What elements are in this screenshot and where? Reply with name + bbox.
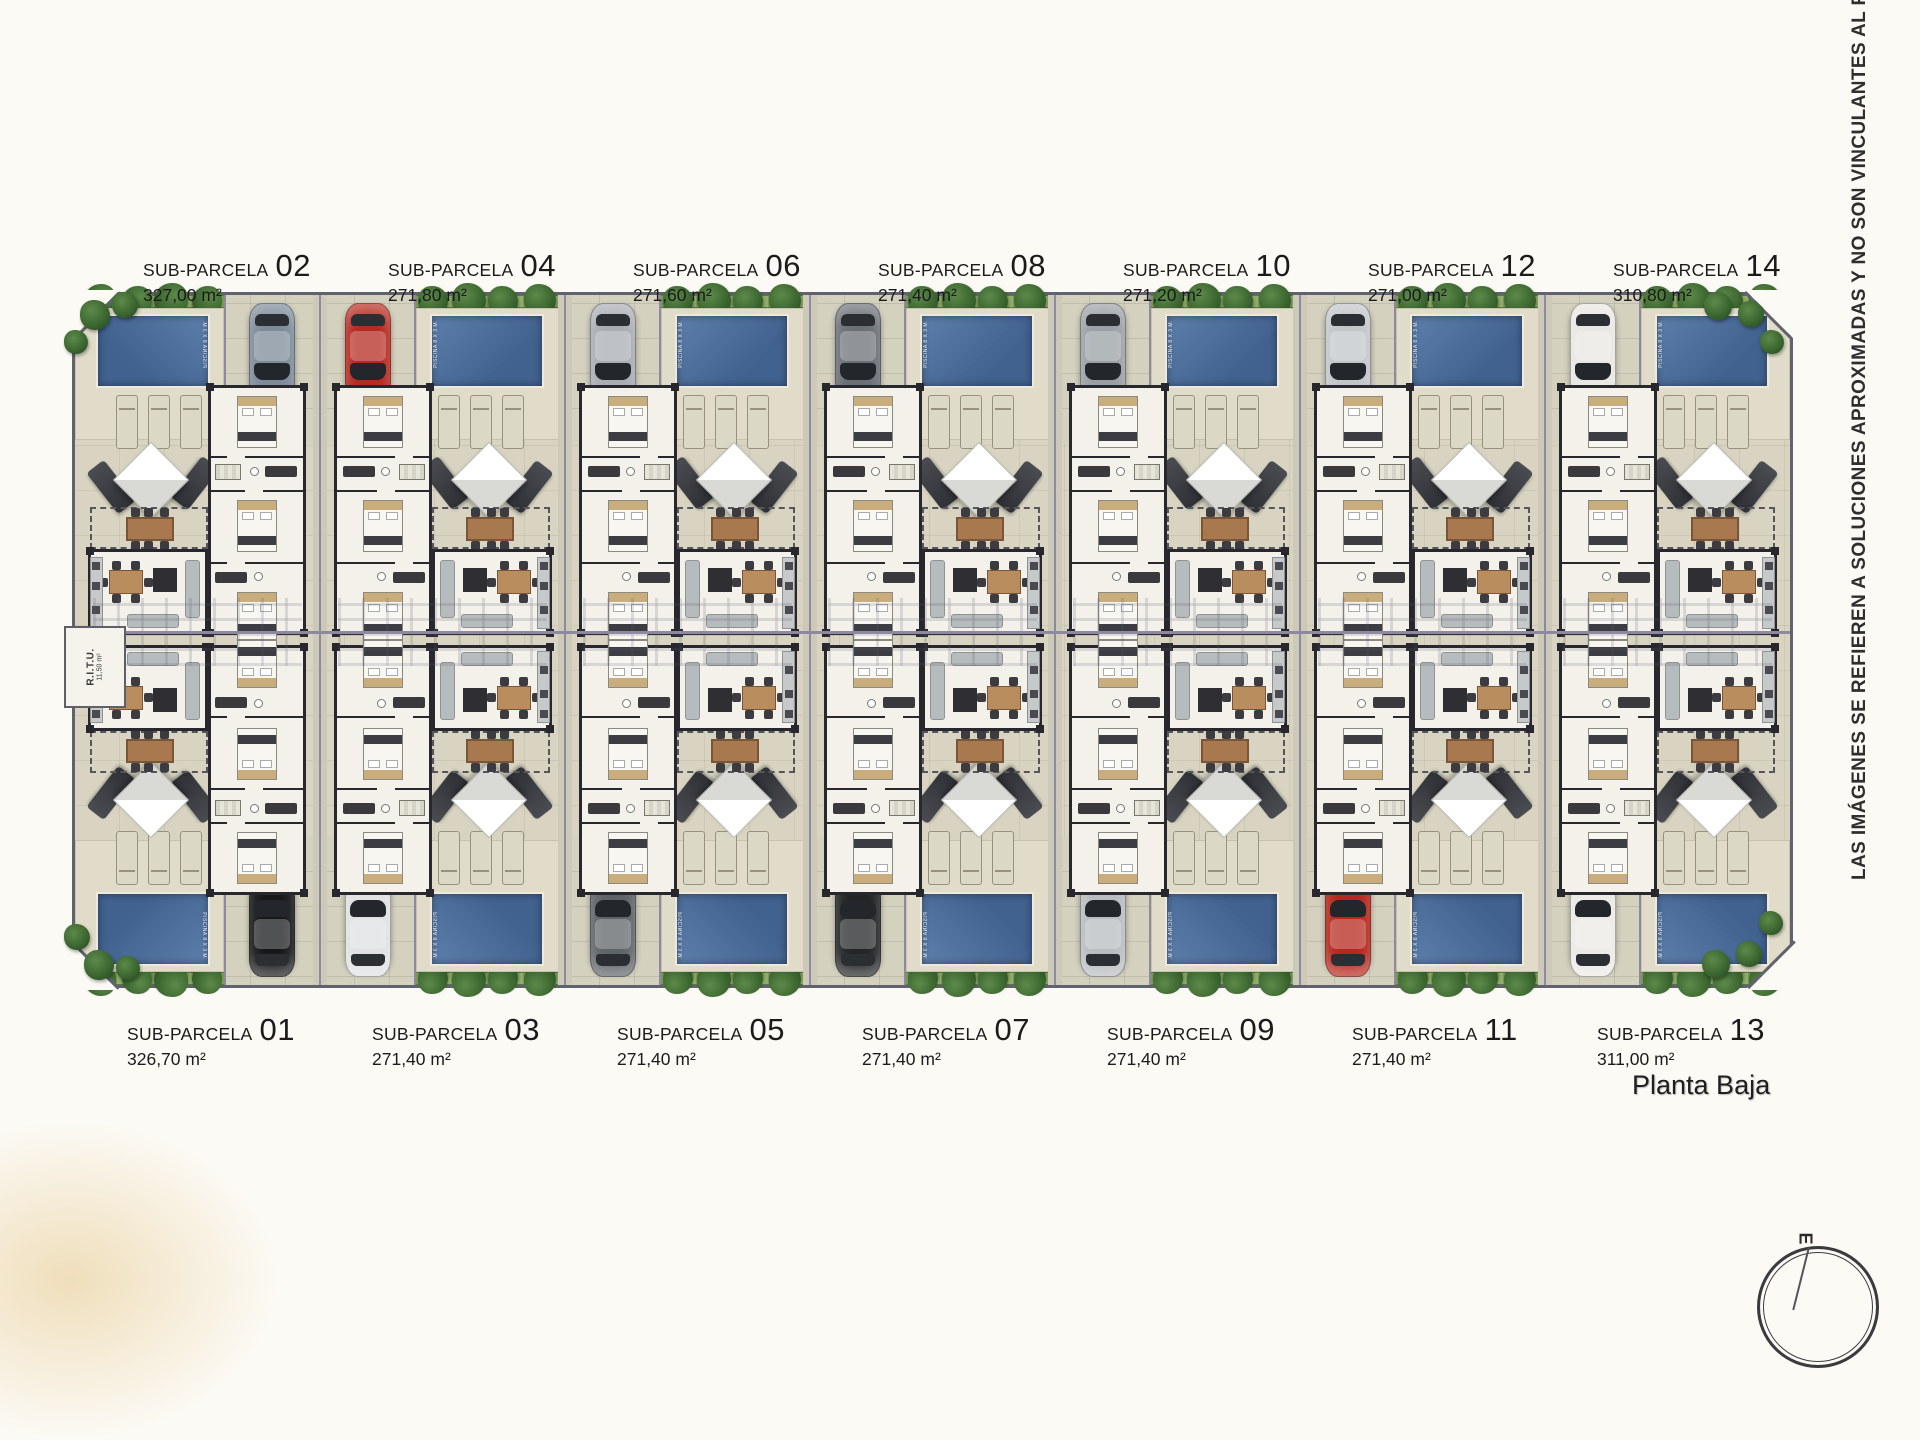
outdoor-table bbox=[1446, 517, 1494, 541]
tree-icon bbox=[1760, 330, 1784, 354]
pool-label: PISCINA 8 X 3 M. bbox=[1413, 320, 1419, 368]
outdoor-table bbox=[1446, 739, 1494, 763]
bed bbox=[1343, 396, 1383, 448]
tree-icon bbox=[1702, 950, 1730, 978]
wardrobe bbox=[215, 464, 241, 480]
car-windshield bbox=[1330, 363, 1366, 380]
swimming-pool: PISCINA 8 X 3 M. bbox=[430, 892, 544, 966]
parcel-label-11: SUB-PARCELA11 271,40 m² bbox=[1352, 1012, 1518, 1070]
utility-room-area: 11,50 m² bbox=[97, 648, 104, 685]
car-roof bbox=[254, 331, 290, 361]
sink-icon bbox=[867, 699, 876, 708]
parcel-area: 271,40 m² bbox=[617, 1049, 785, 1070]
sink-icon bbox=[1116, 467, 1125, 476]
tree-icon bbox=[1736, 941, 1762, 967]
bed bbox=[1343, 832, 1383, 884]
parcel-number: 08 bbox=[1011, 248, 1046, 283]
bed bbox=[853, 832, 893, 884]
sun-lounger bbox=[148, 395, 170, 449]
sink-icon bbox=[1116, 804, 1125, 813]
plan-title: Planta Baja bbox=[1632, 1070, 1770, 1101]
villa-bedroom-wing bbox=[1559, 645, 1657, 895]
pool-label: PISCINA 8 X 3 M. bbox=[201, 912, 207, 960]
bathroom-counter bbox=[215, 697, 247, 708]
parcel-14: PISCINA 8 X 3 M. bbox=[1545, 295, 1790, 640]
tv-unit bbox=[463, 568, 487, 592]
parcel-13: PISCINA 8 X 3 M. bbox=[1545, 640, 1790, 985]
bed bbox=[1588, 832, 1628, 884]
bed bbox=[363, 500, 403, 552]
car-rear-window bbox=[1576, 314, 1610, 326]
parcel-label-prefix: SUB-PARCELA bbox=[862, 1024, 988, 1044]
bathroom-counter bbox=[215, 572, 247, 583]
path-divider bbox=[1538, 295, 1552, 985]
parcel-number: 01 bbox=[260, 1012, 295, 1047]
bathroom-counter bbox=[1323, 803, 1355, 814]
bathroom-counter bbox=[1323, 466, 1355, 477]
bed bbox=[1588, 728, 1628, 780]
pool-label: PISCINA 8 X 3 M. bbox=[1658, 912, 1664, 960]
sun-lounger bbox=[928, 831, 950, 885]
bed bbox=[853, 728, 893, 780]
bed bbox=[608, 832, 648, 884]
tree-icon bbox=[116, 956, 140, 980]
villa-bedroom-wing bbox=[824, 645, 922, 895]
bathroom-counter bbox=[1128, 572, 1160, 583]
bed bbox=[608, 396, 648, 448]
parcel-number: 06 bbox=[766, 248, 801, 283]
sofa bbox=[1175, 662, 1190, 720]
sun-lounger bbox=[1727, 831, 1749, 885]
sun-lounger bbox=[180, 831, 202, 885]
parcel-area: 271,40 m² bbox=[1107, 1049, 1275, 1070]
path-divider bbox=[558, 295, 572, 985]
sink-icon bbox=[1357, 572, 1366, 581]
tv-unit bbox=[1198, 688, 1222, 712]
tv-unit bbox=[708, 688, 732, 712]
bathroom-counter bbox=[265, 466, 297, 477]
sun-lounger bbox=[992, 395, 1014, 449]
sink-icon bbox=[1602, 699, 1611, 708]
sun-lounger bbox=[1695, 831, 1717, 885]
villa-bedroom-wing bbox=[579, 645, 677, 895]
bathroom-counter bbox=[393, 697, 425, 708]
bed bbox=[608, 728, 648, 780]
sun-lounger bbox=[928, 395, 950, 449]
bed bbox=[363, 832, 403, 884]
sun-lounger bbox=[1205, 831, 1227, 885]
parcel-number: 07 bbox=[995, 1012, 1030, 1047]
car-rear-window bbox=[1576, 954, 1610, 966]
car-windshield bbox=[840, 900, 876, 917]
pool-label: PISCINA 8 X 3 M. bbox=[1168, 912, 1174, 960]
sink-icon bbox=[250, 804, 259, 813]
parcel-label-prefix: SUB-PARCELA bbox=[617, 1024, 743, 1044]
swimming-pool: PISCINA 8 X 3 M. bbox=[920, 314, 1034, 388]
outdoor-table bbox=[1691, 739, 1739, 763]
dining-table bbox=[987, 570, 1021, 594]
parcel-area: 271,40 m² bbox=[878, 285, 1046, 306]
car-roof bbox=[1085, 331, 1121, 361]
bathroom-counter bbox=[883, 572, 915, 583]
bed bbox=[1098, 728, 1138, 780]
parcel-label-prefix: SUB-PARCELA bbox=[1352, 1024, 1478, 1044]
bathroom-counter bbox=[1373, 572, 1405, 583]
page-corner-glow bbox=[0, 1120, 280, 1440]
outdoor-table bbox=[1691, 517, 1739, 541]
parcel-label-14: SUB-PARCELA14 310,80 m² bbox=[1613, 248, 1781, 306]
car-roof bbox=[595, 919, 631, 949]
parcel-label-08: SUB-PARCELA08 271,40 m² bbox=[878, 248, 1046, 306]
sun-lounger bbox=[1450, 831, 1472, 885]
sun-lounger bbox=[1237, 831, 1259, 885]
sink-icon bbox=[377, 572, 386, 581]
parcel-number: 11 bbox=[1485, 1012, 1518, 1047]
bathroom-counter bbox=[833, 466, 865, 477]
utility-room-label: R.I.T.U. bbox=[86, 648, 97, 685]
villa-bedroom-wing bbox=[334, 645, 432, 895]
tree-icon bbox=[64, 924, 90, 950]
sink-icon bbox=[1361, 804, 1370, 813]
sofa bbox=[930, 662, 945, 720]
page: { "page": { "disclaimer": "LAS IMÁGENES … bbox=[0, 0, 1920, 1280]
parcel-area: 271,00 m² bbox=[1368, 285, 1536, 306]
car-rear-window bbox=[351, 954, 385, 966]
bathroom-counter bbox=[265, 803, 297, 814]
bathroom-counter bbox=[1078, 803, 1110, 814]
sun-lounger bbox=[1482, 395, 1504, 449]
bed bbox=[1343, 728, 1383, 780]
wardrobe bbox=[644, 800, 670, 816]
parcel-label-prefix: SUB-PARCELA bbox=[388, 260, 514, 280]
sink-icon bbox=[871, 804, 880, 813]
dining-table bbox=[1722, 570, 1756, 594]
parcel-03: PISCINA 8 X 3 M. bbox=[320, 640, 565, 985]
sofa bbox=[1665, 662, 1680, 720]
car-windshield bbox=[840, 363, 876, 380]
swimming-pool: PISCINA 8 X 3 M. bbox=[1165, 892, 1279, 966]
bathroom-counter bbox=[638, 697, 670, 708]
car-windshield bbox=[1330, 900, 1366, 917]
outdoor-table bbox=[956, 517, 1004, 541]
sun-lounger bbox=[438, 395, 460, 449]
bathroom-counter bbox=[588, 803, 620, 814]
parcel-label-07: SUB-PARCELA07 271,40 m² bbox=[862, 1012, 1030, 1070]
sink-icon bbox=[1361, 467, 1370, 476]
wardrobe bbox=[1134, 800, 1160, 816]
bed bbox=[1098, 396, 1138, 448]
bathroom-counter bbox=[393, 572, 425, 583]
parcel-label-03: SUB-PARCELA03 271,40 m² bbox=[372, 1012, 540, 1070]
tv-unit bbox=[1688, 688, 1712, 712]
parcel-02: PISCINA 8 X 3 M. bbox=[75, 295, 320, 640]
villa-bedroom-wing bbox=[1069, 645, 1167, 895]
bathroom-counter bbox=[1128, 697, 1160, 708]
parcel-number: 03 bbox=[505, 1012, 540, 1047]
bathroom-counter bbox=[1568, 803, 1600, 814]
bed bbox=[1098, 500, 1138, 552]
bathroom-counter bbox=[638, 572, 670, 583]
parcel-area: 271,40 m² bbox=[1352, 1049, 1518, 1070]
dining-table bbox=[742, 686, 776, 710]
parcel-label-prefix: SUB-PARCELA bbox=[878, 260, 1004, 280]
bed bbox=[237, 832, 277, 884]
parcel-label-prefix: SUB-PARCELA bbox=[372, 1024, 498, 1044]
sun-lounger bbox=[960, 831, 982, 885]
sun-lounger bbox=[1727, 395, 1749, 449]
bathroom-counter bbox=[1373, 697, 1405, 708]
wardrobe bbox=[889, 464, 915, 480]
swimming-pool: PISCINA 8 X 3 M. bbox=[920, 892, 1034, 966]
outdoor-table bbox=[466, 517, 514, 541]
car-windshield bbox=[254, 363, 290, 380]
car-roof bbox=[350, 919, 386, 949]
bed bbox=[1098, 832, 1138, 884]
parcel-04: PISCINA 8 X 3 M. bbox=[320, 295, 565, 640]
car-rear-window bbox=[1331, 954, 1365, 966]
parcel-label-04: SUB-PARCELA04 271,80 m² bbox=[388, 248, 556, 306]
car-windshield bbox=[595, 900, 631, 917]
bed bbox=[853, 396, 893, 448]
sun-lounger bbox=[148, 831, 170, 885]
sink-icon bbox=[381, 804, 390, 813]
tree-icon bbox=[1759, 911, 1783, 935]
parcel-label-prefix: SUB-PARCELA bbox=[1107, 1024, 1233, 1044]
parcel-label-prefix: SUB-PARCELA bbox=[633, 260, 759, 280]
sun-lounger bbox=[1418, 831, 1440, 885]
parcel-label-06: SUB-PARCELA06 271,60 m² bbox=[633, 248, 801, 306]
car-roof bbox=[595, 331, 631, 361]
sofa bbox=[685, 662, 700, 720]
swimming-pool: PISCINA 8 X 3 M. bbox=[675, 314, 789, 388]
parcel-area: 271,40 m² bbox=[372, 1049, 540, 1070]
car-roof bbox=[350, 331, 386, 361]
sink-icon bbox=[381, 467, 390, 476]
tv-unit bbox=[463, 688, 487, 712]
parcel-label-02: SUB-PARCELA02 327,00 m² bbox=[143, 248, 311, 306]
parcel-08: PISCINA 8 X 3 M. bbox=[810, 295, 1055, 640]
sink-icon bbox=[1606, 804, 1615, 813]
sink-icon bbox=[622, 572, 631, 581]
parcel-label-prefix: SUB-PARCELA bbox=[1123, 260, 1249, 280]
bathroom-counter bbox=[1568, 466, 1600, 477]
car-windshield bbox=[350, 363, 386, 380]
wardrobe bbox=[1379, 800, 1405, 816]
pool-label: PISCINA 8 X 3 M. bbox=[1168, 320, 1174, 368]
parcel-label-05: SUB-PARCELA05 271,40 m² bbox=[617, 1012, 785, 1070]
sun-lounger bbox=[683, 395, 705, 449]
dining-table bbox=[497, 570, 531, 594]
outdoor-table bbox=[711, 739, 759, 763]
sun-lounger bbox=[1663, 395, 1685, 449]
parcel-label-10: SUB-PARCELA10 271,20 m² bbox=[1123, 248, 1291, 306]
wardrobe bbox=[889, 800, 915, 816]
parcel-label-prefix: SUB-PARCELA bbox=[1368, 260, 1494, 280]
wardrobe bbox=[644, 464, 670, 480]
tree-icon bbox=[80, 300, 110, 330]
sofa bbox=[185, 662, 200, 720]
parcel-number: 04 bbox=[521, 248, 556, 283]
parcel-label-01: SUB-PARCELA01 326,70 m² bbox=[127, 1012, 295, 1070]
parcel-number: 09 bbox=[1240, 1012, 1275, 1047]
path-divider bbox=[313, 295, 327, 985]
sun-lounger bbox=[116, 395, 138, 449]
swimming-pool: PISCINA 8 X 3 M. bbox=[1165, 314, 1279, 388]
outdoor-table bbox=[711, 517, 759, 541]
parcel-number: 13 bbox=[1730, 1012, 1765, 1047]
pool-label: PISCINA 8 X 3 M. bbox=[433, 320, 439, 368]
wardrobe bbox=[1624, 800, 1650, 816]
dining-table bbox=[1232, 686, 1266, 710]
sink-icon bbox=[254, 572, 263, 581]
bed bbox=[1588, 396, 1628, 448]
pool-label: PISCINA 8 X 3 M. bbox=[433, 912, 439, 960]
path-divider bbox=[1293, 295, 1307, 985]
parcel-07: PISCINA 8 X 3 M. bbox=[810, 640, 1055, 985]
parcel-number: 02 bbox=[276, 248, 311, 283]
sink-icon bbox=[1357, 699, 1366, 708]
car-roof bbox=[1575, 919, 1611, 949]
tv-unit bbox=[953, 688, 977, 712]
bed bbox=[237, 396, 277, 448]
dining-table bbox=[742, 570, 776, 594]
dining-table bbox=[1477, 686, 1511, 710]
sink-icon bbox=[867, 572, 876, 581]
parcel-label-prefix: SUB-PARCELA bbox=[143, 260, 269, 280]
outdoor-table bbox=[126, 517, 174, 541]
wardrobe bbox=[399, 800, 425, 816]
sun-lounger bbox=[502, 395, 524, 449]
sun-lounger bbox=[715, 831, 737, 885]
outdoor-table bbox=[956, 739, 1004, 763]
tv-unit bbox=[153, 568, 177, 592]
dining-table bbox=[497, 686, 531, 710]
central-path-line bbox=[75, 631, 1790, 634]
bed bbox=[1343, 500, 1383, 552]
bathroom-counter bbox=[883, 697, 915, 708]
car-roof bbox=[1085, 919, 1121, 949]
car-roof bbox=[1330, 919, 1366, 949]
parcel-area: 271,20 m² bbox=[1123, 285, 1291, 306]
bed bbox=[1588, 500, 1628, 552]
car-windshield bbox=[1575, 900, 1611, 917]
car-roof bbox=[254, 919, 290, 949]
parcel-area: 271,60 m² bbox=[633, 285, 801, 306]
car-windshield bbox=[350, 900, 386, 917]
tree-icon bbox=[112, 292, 138, 318]
villa-bedroom-wing bbox=[208, 645, 306, 895]
sun-lounger bbox=[1237, 395, 1259, 449]
compass-icon bbox=[1757, 1246, 1879, 1368]
bed bbox=[363, 728, 403, 780]
parcel-label-prefix: SUB-PARCELA bbox=[127, 1024, 253, 1044]
car-windshield bbox=[1575, 363, 1611, 380]
sink-icon bbox=[1112, 699, 1121, 708]
parcel-label-09: SUB-PARCELA09 271,40 m² bbox=[1107, 1012, 1275, 1070]
tree-icon bbox=[84, 950, 114, 980]
car-windshield bbox=[1085, 900, 1121, 917]
tv-unit bbox=[1688, 568, 1712, 592]
tree-icon bbox=[64, 330, 88, 354]
car-rear-window bbox=[596, 954, 630, 966]
swimming-pool: PISCINA 8 X 3 M. bbox=[675, 892, 789, 966]
sink-icon bbox=[871, 467, 880, 476]
sink-icon bbox=[250, 467, 259, 476]
swimming-pool: PISCINA 8 X 3 M. bbox=[430, 314, 544, 388]
dining-table bbox=[1722, 686, 1756, 710]
parcel-label-13: SUB-PARCELA13 311,00 m² bbox=[1597, 1012, 1765, 1070]
parcel-area: 327,00 m² bbox=[143, 285, 311, 306]
car-roof bbox=[1330, 331, 1366, 361]
bathroom-counter bbox=[343, 803, 375, 814]
wardrobe bbox=[1134, 464, 1160, 480]
sun-lounger bbox=[747, 831, 769, 885]
pool-label: PISCINA 8 X 3 M. bbox=[1658, 320, 1664, 368]
sink-icon bbox=[622, 699, 631, 708]
disclaimer-text: LAS IMÁGENES SE REFIEREN A SOLUCIONES AP… bbox=[1849, 0, 1871, 880]
tv-unit bbox=[1198, 568, 1222, 592]
sink-icon bbox=[626, 804, 635, 813]
parcel-area: 326,70 m² bbox=[127, 1049, 295, 1070]
parcel-10: PISCINA 8 X 3 M. bbox=[1055, 295, 1300, 640]
bed bbox=[237, 500, 277, 552]
pool-label: PISCINA 8 X 3 M. bbox=[201, 320, 207, 368]
swimming-pool: PISCINA 8 X 3 M. bbox=[1410, 892, 1524, 966]
car-windshield bbox=[1085, 363, 1121, 380]
sun-lounger bbox=[992, 831, 1014, 885]
car-rear-window bbox=[255, 314, 289, 326]
parcel-area: 271,80 m² bbox=[388, 285, 556, 306]
sink-icon bbox=[1112, 572, 1121, 581]
wardrobe bbox=[1379, 464, 1405, 480]
bed bbox=[363, 396, 403, 448]
sun-lounger bbox=[116, 831, 138, 885]
sun-lounger bbox=[1418, 395, 1440, 449]
parcel-number: 10 bbox=[1256, 248, 1291, 283]
car-rear-window bbox=[841, 314, 875, 326]
pool-label: PISCINA 8 X 3 M. bbox=[923, 320, 929, 368]
bed bbox=[237, 728, 277, 780]
bathroom-counter bbox=[833, 803, 865, 814]
parcel-09: PISCINA 8 X 3 M. bbox=[1055, 640, 1300, 985]
dining-table bbox=[1477, 570, 1511, 594]
swimming-pool: PISCINA 8 X 3 M. bbox=[1410, 314, 1524, 388]
sun-lounger bbox=[470, 831, 492, 885]
sun-lounger bbox=[1173, 395, 1195, 449]
parcel-label-prefix: SUB-PARCELA bbox=[1613, 260, 1739, 280]
tv-unit bbox=[953, 568, 977, 592]
parcel-number: 12 bbox=[1501, 248, 1536, 283]
dining-table bbox=[987, 686, 1021, 710]
car-rear-window bbox=[596, 314, 630, 326]
parcel-number: 05 bbox=[750, 1012, 785, 1047]
car-rear-window bbox=[255, 954, 289, 966]
parcel-06: PISCINA 8 X 3 M. bbox=[565, 295, 810, 640]
outdoor-table bbox=[126, 739, 174, 763]
parcel-11: PISCINA 8 X 3 M. bbox=[1300, 640, 1545, 985]
bathroom-counter bbox=[588, 466, 620, 477]
parcel-label-prefix: SUB-PARCELA bbox=[1597, 1024, 1723, 1044]
pool-label: PISCINA 8 X 3 M. bbox=[923, 912, 929, 960]
utility-room-box: R.I.T.U. 11,50 m² bbox=[64, 626, 126, 708]
bathroom-counter bbox=[1618, 572, 1650, 583]
sink-icon bbox=[626, 467, 635, 476]
sink-icon bbox=[1602, 572, 1611, 581]
outdoor-table bbox=[1201, 739, 1249, 763]
car-rear-window bbox=[841, 954, 875, 966]
sun-lounger bbox=[438, 831, 460, 885]
sink-icon bbox=[254, 699, 263, 708]
